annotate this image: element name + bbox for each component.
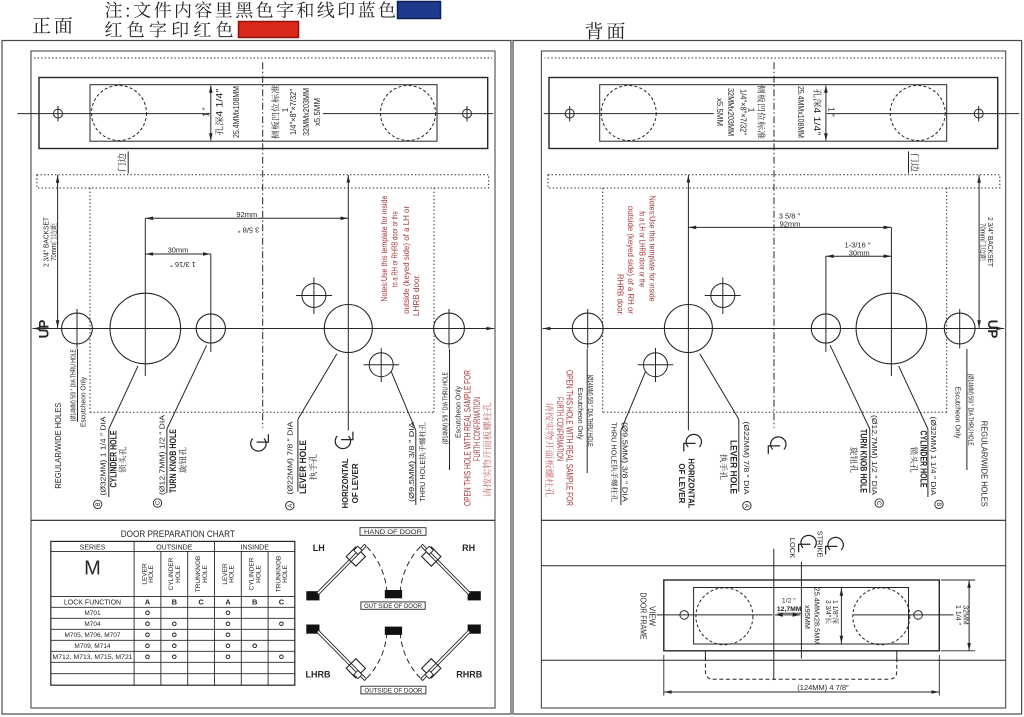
svg-text:25.4MMx108MM: 25.4MMx108MM <box>796 86 805 138</box>
svg-text:CYLINDER HOLE: CYLINDER HOLE <box>918 431 928 488</box>
svg-text:REGULAR/WIDE HOLES: REGULAR/WIDE HOLES <box>980 421 989 507</box>
svg-text:C: C <box>156 500 162 505</box>
svg-text:(Ø22MM) 7/8 ″ DIA: (Ø22MM) 7/8 ″ DIA <box>286 422 295 495</box>
svg-text:A: A <box>288 504 294 508</box>
svg-text:B: B <box>172 598 178 607</box>
svg-text:HOLE: HOLE <box>282 564 289 582</box>
svg-text:INSINDE: INSINDE <box>240 545 269 552</box>
svg-text:THRU HOLE: THRU HOLE <box>418 460 427 502</box>
svg-text:Notes:Use this template for in: Notes:Use this template for inside <box>379 195 389 301</box>
svg-text:(Ø32MM) 1 1/4 ″ DIA: (Ø32MM) 1 1/4 ″ DIA <box>99 417 108 496</box>
svg-text:12,7MM: 12,7MM <box>777 606 802 613</box>
svg-text:fo a LH or LHRB door or the: fo a LH or LHRB door or the <box>637 211 647 287</box>
svg-text:OPEN THIS HOLE WITH REAL SAMPL: OPEN THIS HOLE WITH REAL SAMPLE FOR <box>462 370 472 506</box>
svg-text:30mm: 30mm <box>849 248 870 257</box>
svg-text:outside (keyed side) of a RH o: outside (keyed side) of a RH or <box>626 206 636 314</box>
svg-text:HOLE: HOLE <box>202 564 209 582</box>
svg-text:3 5/8 ″: 3 5/8 ″ <box>238 226 260 235</box>
svg-text:C: C <box>198 598 204 607</box>
svg-text:LOCK FUNCTION: LOCK FUNCTION <box>64 600 121 607</box>
svg-text:(Ø22MM) 7/8 ″ DIA: (Ø22MM) 7/8 ″ DIA <box>742 422 751 495</box>
svg-text:(Ø12.7MM) 1/2 ″ DIA: (Ø12.7MM) 1/2 ″ DIA <box>158 415 167 495</box>
svg-text:C: C <box>279 598 285 607</box>
svg-text:OUTSINDE: OUTSINDE <box>156 545 193 552</box>
svg-text:30mm: 30mm <box>168 245 189 254</box>
svg-text:M709, M714: M709, M714 <box>74 643 111 650</box>
svg-text:(Ø14MM) 5/9 ″ DIA THRU HOLE: (Ø14MM) 5/9 ″ DIA THRU HOLE <box>586 375 595 447</box>
svg-text:HORIZONTAL: HORIZONTAL <box>341 458 350 508</box>
svg-text:70mm: 70mm <box>51 244 58 261</box>
svg-text:LHRB: LHRB <box>306 669 331 679</box>
svg-text:92mm: 92mm <box>780 220 801 229</box>
svg-text:DOOR PREPARATION CHART: DOOR PREPARATION CHART <box>121 529 235 539</box>
svg-text:HOLE: HOLE <box>255 564 262 582</box>
svg-text:(Ø12.7MM) 1/2 ″ DIA: (Ø12.7MM) 1/2 ″ DIA <box>870 415 879 495</box>
svg-text:HOLE: HOLE <box>148 564 155 582</box>
svg-text:Escutcheon Only: Escutcheon Only <box>576 388 585 440</box>
svg-text:B: B <box>252 598 258 607</box>
svg-text:M701: M701 <box>84 610 101 617</box>
svg-text:92mm: 92mm <box>236 210 257 219</box>
svg-text:2 3/4″ BACKSET: 2 3/4″ BACKSET <box>42 217 51 267</box>
svg-text:TURN KNOB HOLE: TURN KNOB HOLE <box>168 429 178 493</box>
svg-text:FURTH CONFIRMATION: FURTH CONFIRMATION <box>472 397 482 461</box>
svg-text:C: C <box>875 501 881 506</box>
svg-text:M712, M713, M715, M721: M712, M713, M715, M721 <box>53 654 133 661</box>
svg-text:4 1/4″: 4 1/4″ <box>812 107 822 136</box>
svg-text:70mm: 70mm <box>979 223 986 240</box>
svg-text:(Ø14MM) 5/9 ″ DIA THRU HOLE: (Ø14MM) 5/9 ″ DIA THRU HOLE <box>967 374 976 446</box>
svg-text:2 3/4″ BACKSET: 2 3/4″ BACKSET <box>986 217 995 267</box>
svg-text:1 1/8″: 1 1/8″ <box>831 600 838 617</box>
svg-text:M704: M704 <box>84 621 101 628</box>
svg-text:1/2 ″: 1/2 ″ <box>782 598 796 605</box>
svg-text:(Ø9.5MM) 3/8 ″ DIA: (Ø9.5MM) 3/8 ″ DIA <box>407 422 416 502</box>
svg-text:x95MM: x95MM <box>803 605 810 629</box>
svg-text:STRIKE: STRIKE <box>815 530 824 557</box>
svg-text:HORIZONTAL: HORIZONTAL <box>687 458 696 508</box>
svg-text:FURTH CONFIRMATION: FURTH CONFIRMATION <box>555 397 565 461</box>
svg-text:RHRB: RHRB <box>456 669 482 679</box>
svg-text:25.4MMx28.5MM: 25.4MMx28.5MM <box>812 588 819 645</box>
svg-text:OUT SIDE OF DOOR: OUT SIDE OF DOOR <box>364 603 422 610</box>
svg-text:OPEN THIS HOLE WITH REAL SAMPL: OPEN THIS HOLE WITH REAL SAMPLE FOR <box>564 370 574 506</box>
svg-text:THRU HOLE: THRU HOLE <box>610 422 619 464</box>
svg-text:LHRB door.: LHRB door. <box>411 274 421 316</box>
svg-text:32MM: 32MM <box>961 605 968 625</box>
svg-text:LH: LH <box>313 543 325 553</box>
svg-text:OF LEVER: OF LEVER <box>677 463 686 503</box>
svg-text:LEVER HOLE: LEVER HOLE <box>298 440 308 494</box>
svg-text:32MMx203MM: 32MMx203MM <box>726 88 735 136</box>
svg-text:(Ø14MM) 5/9 ″ DIA THRU HOLE: (Ø14MM) 5/9 ″ DIA THRU HOLE <box>440 372 449 444</box>
svg-text:UP: UP <box>985 320 1000 339</box>
svg-text:DOOR FRAME: DOOR FRAME <box>639 593 648 640</box>
svg-text:B: B <box>935 502 941 506</box>
svg-text:1 ″: 1 ″ <box>826 107 835 117</box>
svg-text:UP: UP <box>37 320 52 339</box>
svg-text:1/4″×8″×7/32″: 1/4″×8″×7/32″ <box>289 89 298 135</box>
svg-text:4 1/4″: 4 1/4″ <box>215 88 225 117</box>
svg-text:LOCK: LOCK <box>788 538 797 558</box>
svg-text:1/4″×8″×7/32″: 1/4″×8″×7/32″ <box>739 89 748 135</box>
svg-text:x5.5MM: x5.5MM <box>715 98 724 126</box>
svg-text:to a RH or RHRB door or the: to a RH or RHRB door or the <box>389 211 399 287</box>
svg-text:RH: RH <box>462 543 475 553</box>
svg-text:Notes:Use this template for in: Notes:Use this template for inside <box>648 196 658 302</box>
svg-text:LEVER HOLE: LEVER HOLE <box>729 440 739 494</box>
svg-text:(Ø9.5MM) 3/8 ″ DIA: (Ø9.5MM) 3/8 ″ DIA <box>621 422 630 502</box>
svg-text:Escutcheon Only: Escutcheon Only <box>954 387 963 439</box>
svg-text:A: A <box>743 504 749 508</box>
svg-text:TURN KNOB HOLE: TURN KNOB HOLE <box>859 429 869 493</box>
svg-text:(124MM) 4 7/8″: (124MM) 4 7/8″ <box>797 683 849 692</box>
svg-text:HAND OF DOOR: HAND OF DOOR <box>364 529 422 536</box>
svg-text:(Ø14MM) 5/9 ″ DIA THRU HOLE: (Ø14MM) 5/9 ″ DIA THRU HOLE <box>68 349 77 421</box>
svg-text:32MMx203MM: 32MMx203MM <box>302 88 311 136</box>
svg-text:RHRB door.: RHRB door. <box>616 274 626 316</box>
svg-text:1 3/16 ″: 1 3/16 ″ <box>170 260 196 269</box>
svg-text:outside (keyed side) of a LH o: outside (keyed side) of a LH or <box>401 206 411 314</box>
svg-text:CYLINDER HOLE: CYLINDER HOLE <box>108 431 118 488</box>
svg-text:B: B <box>96 502 102 506</box>
svg-text:OUTSIDE OF DOOR: OUTSIDE OF DOOR <box>364 687 422 694</box>
svg-text:(Ø32MM) 1 1/4 ″ DIA: (Ø32MM) 1 1/4 ″ DIA <box>929 417 938 496</box>
svg-text:OF LEVER: OF LEVER <box>351 463 360 503</box>
svg-text:A: A <box>145 598 151 607</box>
svg-text:Escutcheon Only: Escutcheon Only <box>453 386 462 438</box>
svg-text:A: A <box>225 598 231 607</box>
svg-text:REGULAR/WIDE HOLES: REGULAR/WIDE HOLES <box>54 403 63 489</box>
svg-text:25.4MMx108MM: 25.4MMx108MM <box>232 86 241 138</box>
svg-text:1 1/4 ″: 1 1/4 ″ <box>954 605 961 626</box>
svg-text:VIEW: VIEW <box>648 606 657 626</box>
svg-text:x5.5MM: x5.5MM <box>313 98 322 126</box>
svg-text:M: M <box>84 558 101 580</box>
svg-text:SERIES: SERIES <box>80 545 106 552</box>
svg-text:Escutcheon Only: Escutcheon Only <box>79 377 88 427</box>
svg-text:HOLE: HOLE <box>229 564 236 582</box>
svg-text:HOLE: HOLE <box>175 564 182 582</box>
svg-text:1 ″: 1 ″ <box>201 107 210 117</box>
svg-text:3 3/4″: 3 3/4″ <box>824 600 831 617</box>
svg-text:M705, M706, M707: M705, M706, M707 <box>64 632 120 639</box>
